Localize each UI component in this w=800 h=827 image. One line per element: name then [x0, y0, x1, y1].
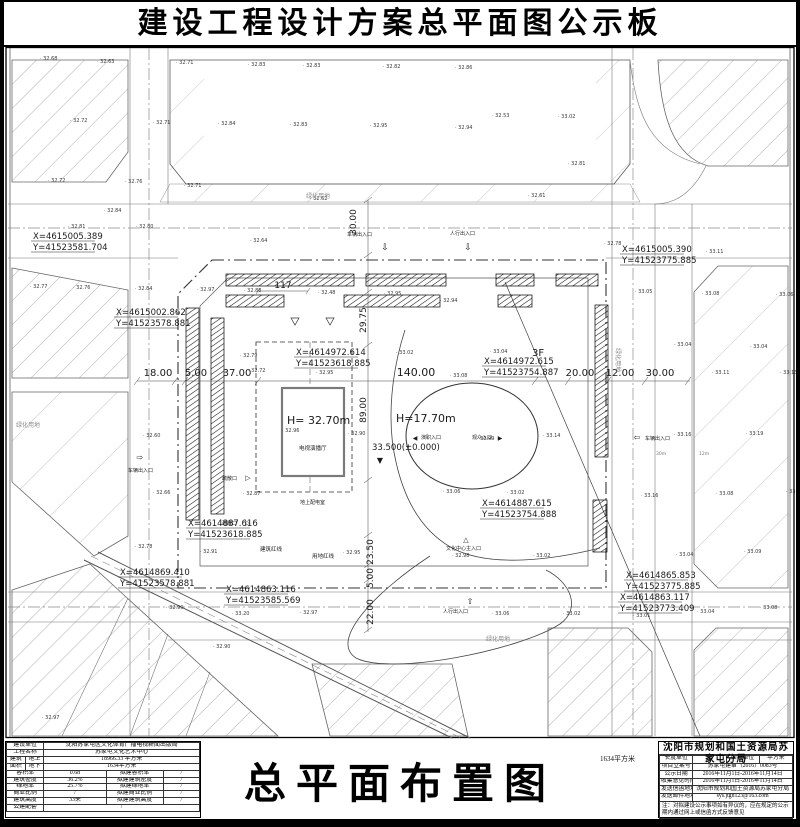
performer-entrance-label: 演职入口 — [421, 434, 441, 441]
coordinate-y: Y=41523775.885 — [625, 582, 701, 592]
coordinate-y: Y=41523581.704 — [32, 243, 108, 253]
studio-height-label: H= 32.70m — [287, 414, 350, 427]
spot-elevation: · 33.02 — [558, 114, 576, 120]
agency-info-table-box: 沈阳市规划和国土资源局苏家屯分局 长度单位米面积单位平方米项目立案号苏家屯建审（… — [658, 741, 794, 818]
spot-elevation: · 33.08 — [450, 373, 468, 379]
studio-name-label: 电视演播厅 — [299, 444, 327, 452]
spot-elevation: · 33.04 — [676, 552, 694, 558]
spot-elevation: · 32.83 — [303, 63, 321, 69]
spot-elevation: · 32.87 — [243, 491, 261, 497]
dimension-label: 89.00 — [359, 397, 369, 423]
audience-entrance-label: 观众入口 — [472, 435, 492, 441]
table-cell: 公示日期 — [660, 771, 693, 779]
pedestrian-entrance-label: 人行出入口 — [443, 608, 468, 615]
table-cell: 平方米 — [759, 756, 792, 764]
table-row: 建筑密度36.2%拟建建筑密度/ — [7, 777, 200, 784]
spot-elevation: · 32.95 — [370, 123, 388, 129]
spot-elevation: · 33.16 — [674, 432, 692, 438]
green-land-label: 绿化用地 — [16, 421, 40, 429]
spot-elevation: · 33.14 — [786, 489, 796, 495]
spot-elevation: · 33.04 — [697, 609, 715, 615]
table-cell: 33米 — [44, 798, 106, 805]
coordinate-x: X=4614863.117 — [620, 593, 690, 603]
spot-elevation: · 32.76 — [125, 179, 143, 185]
spot-elevation: · 32.77 — [30, 284, 48, 290]
coordinate-y: Y=41523775.885 — [621, 256, 697, 266]
spot-elevation: · 32.83 — [248, 62, 266, 68]
title-block-strip: 总平面布置图 1634平方米 建设单位沈阳苏家屯区文化体育广播电视新闻出版局工程… — [4, 740, 796, 819]
table-cell: 项目立案号 — [660, 763, 693, 771]
table-cell: 地下 — [25, 763, 44, 770]
table-cell: 收集意见时间 — [660, 778, 693, 786]
coordinate-x: X=4614972.614 — [296, 348, 366, 358]
table-cell: 苏家屯文化艺术中心 — [44, 749, 200, 756]
dimension-label: 5.00 — [185, 368, 207, 379]
spot-elevation: · 32.71 — [176, 60, 194, 66]
table-cell: / — [163, 798, 199, 805]
spot-elevation: · 32.78 — [135, 544, 153, 550]
performer-entrance-label-arrow-icon: ◀ — [413, 435, 418, 442]
notice-board-page: 建设工程设计方案总平面图公示板 — [0, 0, 800, 827]
spot-elevation: · 32.80 — [136, 224, 154, 230]
coordinate-x: X=4615005.390 — [622, 245, 692, 255]
table-row: 公建配套/ — [7, 805, 200, 812]
spot-elevation: · 32.66 — [153, 490, 171, 496]
spot-elevation: · 33.02 — [533, 553, 551, 559]
table-cell: 建筑 — [7, 756, 26, 763]
coordinate-y: Y=41523618.885 — [295, 359, 371, 369]
spot-elevation: · 32.86 — [455, 65, 473, 71]
spot-elevation: · 32.88 — [244, 288, 262, 294]
table-row: 商业比例/拟建商业比例/ — [7, 791, 200, 798]
spot-elevation: · 32.81 — [68, 224, 86, 230]
spot-elevation: · 33.14 — [543, 433, 561, 439]
spot-elevation: · 32.63 — [97, 59, 115, 65]
table-cell: 建筑密度 — [7, 777, 44, 784]
table-cell: 面积 — [7, 763, 26, 770]
table-row: 工程名称苏家屯文化艺术中心 — [7, 749, 200, 756]
spot-elevation: · 33.08 — [760, 605, 778, 611]
dimension-label: 22.00 — [366, 599, 376, 625]
spot-elevation: · 32.94 — [455, 125, 473, 131]
spot-elevation: · 32.76 — [73, 285, 91, 291]
table-row: 面积地下1634平方米 — [7, 763, 200, 770]
spot-elevation: · 33.20 — [232, 611, 250, 617]
table-cell: 建设单位 — [7, 743, 44, 750]
coordinate-x: X=4615005.389 — [33, 232, 103, 242]
spot-elevation: · 32.68 — [40, 56, 58, 62]
spot-elevation: · 32.90 — [166, 605, 184, 611]
coordinate-y: Y=41523754.887 — [483, 368, 559, 378]
main-entrance-label-arrow-icon: △ — [463, 536, 469, 544]
spot-elevation: · 33.04 — [674, 342, 692, 348]
road-width-label: 30m — [656, 451, 666, 457]
table-cell: 长度单位 — [660, 756, 693, 764]
table-cell: 面积单位 — [726, 756, 759, 764]
spot-elevation: · 32.91 — [200, 549, 218, 555]
spot-elevation: · 32.83 — [290, 122, 308, 128]
table-cell: / — [163, 791, 199, 798]
coordinate-x: X=4614869.410 — [120, 568, 190, 578]
table-cell: 2016年11月1日-2016年11月14日 — [693, 771, 793, 779]
level-label: 33.500(±0.000) — [372, 443, 440, 453]
table-row: 建筑高度33米拟建建筑高度/ — [7, 798, 200, 805]
table-row: 发送信函地址沈阳市规划和国土资源局苏家屯分局 — [660, 786, 793, 794]
table-cell: 1634平方米 — [44, 763, 200, 770]
table-cell: 36.2% — [44, 777, 106, 784]
spot-elevation: · 33.09 — [744, 549, 762, 555]
coordinate-x: X=4614972.615 — [484, 357, 554, 367]
dimension-label: 29.75 — [359, 307, 369, 333]
table-cell: 18966.33 平方米 — [44, 756, 200, 763]
table-row: 建设单位沈阳苏家屯区文化体育广播电视新闻出版局 — [7, 743, 200, 750]
spot-elevation: · 32.64 — [250, 238, 268, 244]
building-redline-label: 建筑红线 — [260, 545, 283, 553]
table-cell: 拟建商业比例 — [106, 791, 163, 798]
coordinate-y: Y=41523578.881 — [115, 319, 191, 329]
dimension-label: 117 — [274, 281, 291, 291]
table-cell: 0.68 — [44, 770, 106, 777]
table-row: 公示日期2016年11月1日-2016年11月14日 — [660, 771, 793, 779]
green-land-label: 绿化用地 — [614, 348, 622, 372]
coordinate-y: Y=41523578.881 — [119, 579, 195, 589]
spot-elevation: · 33.06 — [443, 489, 461, 495]
spot-elevation: · 33.16 — [641, 493, 659, 499]
pedestrian-entrance-label-arrow-icon: ⇧ — [467, 597, 474, 606]
spot-elevation: · 32.95 — [316, 370, 334, 376]
table-row: 收集意见时间2016年11月1日-2016年11月14日 — [660, 778, 793, 786]
spot-elevation: · 32.72 — [48, 178, 66, 184]
pedestrian-entrance-label: 人行出入口 — [450, 230, 475, 237]
spot-elevation: · 33.08 — [702, 291, 720, 297]
vehicle-entrance-label-arrow-icon: ⇦ — [634, 433, 641, 442]
spot-elevation: · 33.19 — [746, 431, 764, 437]
table-cell: / — [44, 805, 200, 812]
spot-elevation: · 33.04 — [490, 349, 508, 355]
spot-elevation: · 32.60 — [143, 433, 161, 439]
table-row: 容积率0.68拟建容积率/ — [7, 770, 200, 777]
table-row: 发送邮件地址sys.jtgh123@163.com — [660, 793, 793, 801]
table-cell: 沈阳苏家屯区文化体育广播电视新闻出版局 — [44, 743, 200, 750]
table-cell: 拟建建筑密度 — [106, 777, 163, 784]
table-row: 绿地率25.7%拟建绿地率/ — [7, 784, 200, 791]
dimension-label: 23.50 — [366, 539, 376, 565]
agency-name: 沈阳市规划和国土资源局苏家屯分局 — [659, 742, 793, 755]
spot-elevation: · 32.84 — [104, 208, 122, 214]
table-cell: 绿地率 — [7, 784, 44, 791]
vehicle-entrance-label: 车辆出入口 — [645, 435, 670, 442]
spot-elevation: · 32.94 — [440, 298, 458, 304]
spot-elevation: · 32.90 — [348, 431, 366, 437]
table-row: 建筑地上18966.33 平方米 — [7, 756, 200, 763]
coordinate-x: X=4614887.616 — [188, 519, 258, 529]
table-cell: 发送信函地址 — [660, 786, 693, 794]
vehicle-entrance-label-arrow-icon: ⇩ — [381, 243, 389, 253]
spot-elevation: · 32.84 — [135, 286, 153, 292]
project-info-table: 建设单位沈阳苏家屯区文化体育广播电视新闻出版局工程名称苏家屯文化艺术中心建筑地上… — [6, 742, 200, 812]
table-cell: 拟建绿地率 — [106, 784, 163, 791]
pedestrian-entrance-label-arrow-icon: ⇩ — [464, 243, 472, 253]
table-cell: 苏家屯建审（2016）0083号 — [693, 763, 793, 771]
spot-elevation: · 32.61 — [528, 193, 546, 199]
dimension-label: 140.00 — [397, 366, 436, 379]
vehicle-entrance-label-arrow-icon: ⇨ — [137, 453, 144, 462]
spot-elevation: · 33.06 — [776, 292, 794, 298]
spot-elevation: · 32.97 — [42, 715, 60, 721]
spot-elevation: · 32.79 — [240, 353, 258, 359]
hall-height-label: H=17.70m — [396, 412, 456, 425]
coordinate-y: Y=41523585.569 — [225, 596, 301, 606]
evacuation-exit-label: 疏散口 — [222, 475, 237, 482]
dimension-label: 30.00 — [646, 368, 675, 379]
spot-elevation: · 32.82 — [383, 64, 401, 70]
table-cell: / — [163, 770, 199, 777]
dimension-label: 20.00 — [566, 368, 595, 379]
table-cell: 2016年11月1日-2016年11月14日 — [693, 778, 793, 786]
site-plan-drawing: · 32.68· 32.63· 32.72· 32.72· 32.76· 32.… — [4, 46, 796, 740]
spot-elevation: · 32.97 — [300, 610, 318, 616]
spot-elevation: · 32.78 — [604, 241, 622, 247]
dimension-label: 30.00 — [349, 209, 359, 235]
project-info-table-box: 建设单位沈阳苏家屯区文化体育广播电视新闻出版局工程名称苏家屯文化艺术中心建筑地上… — [5, 741, 201, 818]
vehicle-entrance-label: 车辆出入口 — [347, 231, 372, 238]
table-cell: 工程名称 — [7, 749, 44, 756]
area-note: 1634平方米 — [600, 754, 635, 764]
table-row: 注：对拟建设公示事项如有异议的，应在规定的公示期内通过网上或信函方式反馈意见 — [660, 801, 793, 818]
coordinate-y: Y=41523754.888 — [481, 510, 557, 520]
notice-note: 注：对拟建设公示事项如有异议的，应在规定的公示期内通过网上或信函方式反馈意见 — [660, 801, 793, 818]
site-plan-svg: · 32.68· 32.63· 32.72· 32.72· 32.76· 32.… — [4, 46, 796, 740]
spot-elevation: · 32.81 — [568, 161, 586, 167]
evacuation-exit-label-arrow-icon: ▷ — [245, 474, 251, 482]
spot-elevation: · 32.96 — [282, 428, 300, 434]
table-cell: 容积率 — [7, 770, 44, 777]
table-cell: 建筑高度 — [7, 798, 44, 805]
spot-elevation: · 32.84 — [218, 121, 236, 127]
spot-elevation: · 32.53 — [492, 113, 510, 119]
dimension-label: 5.00 — [366, 568, 376, 588]
spot-elevation: · 33.02 — [507, 490, 525, 496]
coordinate-y: Y=41523773.409 — [619, 604, 695, 614]
table-cell: / — [163, 777, 199, 784]
drawing-title: 总平面布置图 — [244, 750, 556, 811]
spot-elevation: · 33.13 — [780, 370, 796, 376]
agency-info-table: 长度单位米面积单位平方米项目立案号苏家屯建审（2016）0083号公示日期201… — [659, 755, 793, 819]
table-cell: 地上 — [25, 756, 44, 763]
audience-entrance-label-arrow-icon: ▶ — [498, 435, 503, 442]
power-room-label: 地上配电室 — [300, 499, 325, 506]
board-title: 建设工程设计方案总平面图公示板 — [4, 2, 796, 47]
spot-elevation: · 33.08 — [716, 491, 734, 497]
site-redline-label: 用地红线 — [312, 552, 335, 560]
spot-elevation: · 32.48 — [318, 290, 336, 296]
drawing-sheet: 建设工程设计方案总平面图公示板 — [4, 2, 796, 819]
table-row: 项目立案号苏家屯建审（2016）0083号 — [660, 763, 793, 771]
coordinate-x: X=4614863.116 — [226, 585, 296, 595]
coordinate-x: X=4615002.862 — [116, 308, 186, 318]
table-cell: 公建配套 — [7, 805, 44, 812]
spot-elevation: · 33.06 — [492, 611, 510, 617]
spot-elevation: · 33.11 — [712, 370, 730, 376]
table-cell: / — [163, 784, 199, 791]
table-cell: 拟建容积率 — [106, 770, 163, 777]
level-marker-arrow-icon: ▼ — [377, 456, 384, 465]
green-land-label: 绿化用地 — [306, 192, 330, 200]
coordinate-y: Y=41523618.885 — [187, 530, 263, 540]
table-cell: sys.jtgh123@163.com — [693, 793, 793, 801]
spot-elevation: · 33.11 — [706, 249, 724, 255]
spot-elevation: · 33.02 — [563, 611, 581, 617]
table-cell: / — [44, 791, 106, 798]
spot-elevation: · 32.71 — [153, 120, 171, 126]
spot-elevation: · 32.71 — [184, 183, 202, 189]
spot-elevation: · 32.90 — [213, 644, 231, 650]
table-cell: 沈阳市规划和国土资源局苏家屯分局 — [693, 786, 793, 794]
spot-elevation: · 33.02 — [396, 350, 414, 356]
table-cell: 拟建建筑高度 — [106, 798, 163, 805]
spot-elevation: · 32.95 — [384, 291, 402, 297]
road-width-label: 12m — [699, 451, 709, 457]
table-cell: 发送邮件地址 — [660, 793, 693, 801]
spot-elevation: · 32.98 — [452, 553, 470, 559]
spot-elevation: · 32.72 — [70, 118, 88, 124]
dimension-label: 37.00 — [223, 368, 252, 379]
vehicle-entrance-label: 车辆出入口 — [128, 467, 153, 474]
table-cell: 商业比例 — [7, 791, 44, 798]
coordinate-x: X=4614887.615 — [482, 499, 552, 509]
green-land-label: 绿化用地 — [486, 635, 510, 643]
main-entrance-label: 文化中心主入口 — [446, 545, 481, 552]
coordinate-x: X=4614865.853 — [626, 571, 696, 581]
dimension-label: 18.00 — [144, 368, 173, 379]
spot-elevation: · 32.95 — [343, 550, 361, 556]
table-cell: 25.7% — [44, 784, 106, 791]
spot-elevation: · 33.05 — [635, 289, 653, 295]
spot-elevation: · 32.97 — [197, 287, 215, 293]
spot-elevation: · 33.04 — [750, 344, 768, 350]
